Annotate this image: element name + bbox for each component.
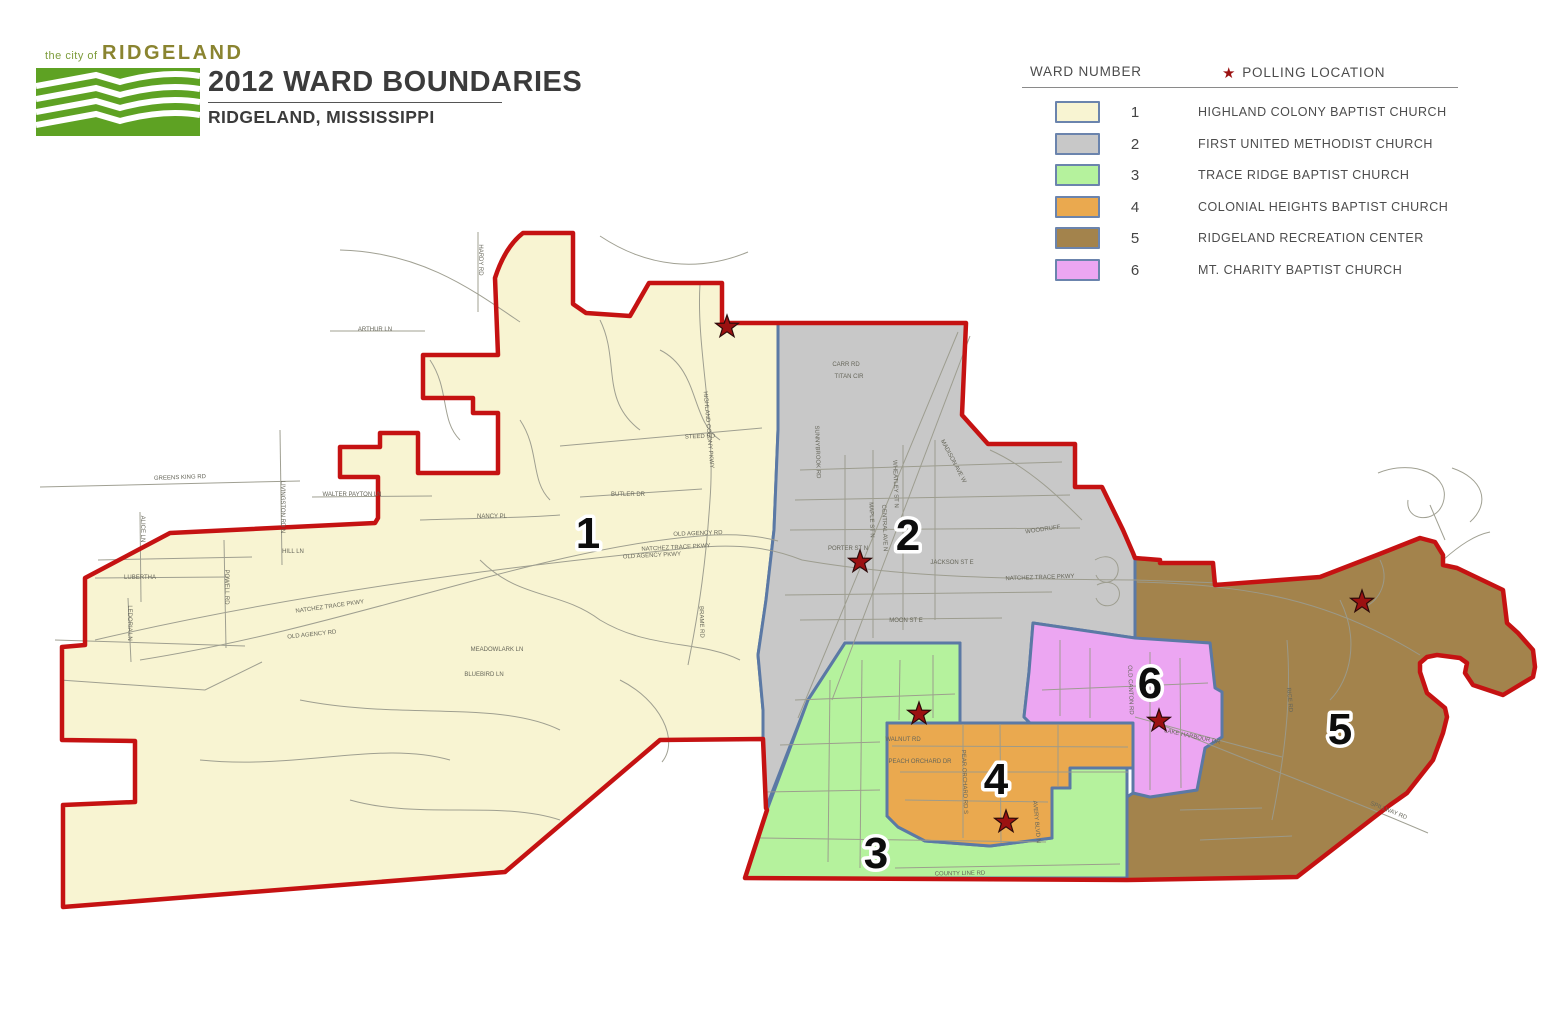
legend-polling-location: FIRST UNITED METHODIST CHURCH	[1198, 137, 1433, 151]
map-poster: ARTHUR LNHARDY RDGREENS KING RDWALTER PA…	[0, 0, 1568, 1014]
street-label: LUBERTHA	[124, 575, 156, 581]
street-label: WALNUT RD	[885, 737, 921, 743]
street-label: MOON ST E	[889, 618, 923, 624]
ward-number-label-4: 4	[984, 755, 1009, 804]
ward-regions	[62, 233, 1535, 907]
page-title: 2012 WARD BOUNDARIES	[208, 66, 688, 99]
street-line	[600, 236, 748, 264]
ward-region-1	[62, 233, 778, 907]
legend-ward-number: 4	[1118, 199, 1152, 216]
title-rule	[208, 102, 502, 103]
street-label: HARDY RD	[477, 244, 483, 276]
legend-row-ward-5: 5RIDGELAND RECREATION CENTER	[1022, 227, 1458, 250]
legend-polling-location: COLONIAL HEIGHTS BAPTIST CHURCH	[1198, 200, 1448, 214]
street-label: GREENS KING RD	[154, 474, 207, 482]
street-label: MAPLE ST N	[867, 502, 874, 538]
street-line	[340, 250, 520, 322]
street-label: COUNTY LINE RD	[935, 871, 986, 878]
logo-text: the city of RIDGELAND	[45, 42, 243, 65]
legend-rows: 1HIGHLAND COLONY BAPTIST CHURCH2FIRST UN…	[1022, 101, 1458, 282]
ward-number-label-2: 2	[896, 511, 920, 560]
street-label: POWELL RD	[223, 569, 229, 605]
legend-swatch-ward-6	[1055, 259, 1100, 281]
street-label: CARR RD	[832, 362, 860, 368]
legend-swatch-ward-4	[1055, 196, 1100, 218]
legend-polling-heading-group: ★POLLING LOCATION	[1222, 64, 1385, 82]
legend-polling-location: MT. CHARITY BAPTIST CHURCH	[1198, 263, 1402, 277]
polling-star-icon: ★	[1222, 65, 1236, 82]
legend-ward-number-heading: WARD NUMBER	[1030, 64, 1142, 79]
legend-polling-location: HIGHLAND COLONY BAPTIST CHURCH	[1198, 105, 1447, 119]
legend-polling-location: RIDGELAND RECREATION CENTER	[1198, 231, 1424, 245]
street-label: BRAME RD	[697, 606, 704, 639]
street-line	[1430, 505, 1445, 540]
ward-number-label-6: 6	[1138, 659, 1162, 708]
street-label: BLUEBIRD LN	[464, 672, 503, 678]
street-label: HILL LN	[282, 549, 304, 555]
ward-number-label-5: 5	[1328, 705, 1352, 754]
legend-header: WARD NUMBER ★POLLING LOCATION	[1022, 58, 1458, 80]
legend-ward-number: 5	[1118, 230, 1152, 247]
legend: WARD NUMBER ★POLLING LOCATION 1HIGHLAND …	[1022, 58, 1458, 291]
header: the city of RIDGELAND 2012 WARD BOUNDARI…	[0, 0, 700, 160]
legend-divider	[1022, 87, 1458, 88]
street-label: BUTLER DR	[611, 492, 646, 498]
logo-waves-icon	[36, 68, 200, 136]
legend-row-ward-6: 6MT. CHARITY BAPTIST CHURCH	[1022, 259, 1458, 282]
legend-ward-number: 3	[1118, 167, 1152, 184]
logo-brand-text: RIDGELAND	[102, 42, 243, 64]
legend-ward-number: 6	[1118, 262, 1152, 279]
street-label: ALICE LN	[139, 516, 145, 543]
legend-polling-location: TRACE RIDGE BAPTIST CHURCH	[1198, 168, 1409, 182]
street-label: NANCY PL	[477, 514, 508, 520]
legend-swatch-ward-1	[1055, 101, 1100, 123]
legend-swatch-ward-2	[1055, 133, 1100, 155]
street-label: ARTHUR LN	[358, 327, 392, 333]
legend-swatch-ward-5	[1055, 227, 1100, 249]
street-label: LIVINGSTON RD N	[279, 481, 285, 534]
legend-row-ward-3: 3TRACE RIDGE BAPTIST CHURCH	[1022, 164, 1458, 187]
street-label: TITAN CIR	[835, 374, 865, 380]
title-block: 2012 WARD BOUNDARIES RIDGELAND, MISSISSI…	[208, 66, 688, 128]
legend-ward-number: 1	[1118, 104, 1152, 121]
street-label: WALTER PAYTON LN	[322, 492, 381, 498]
street-label: LEDORIA LN	[126, 605, 132, 640]
legend-row-ward-1: 1HIGHLAND COLONY BAPTIST CHURCH	[1022, 101, 1458, 124]
legend-swatch-ward-3	[1055, 164, 1100, 186]
ward-number-label-3: 3	[864, 829, 888, 878]
street-line	[40, 481, 300, 487]
logo-small-text: the city of	[45, 50, 98, 62]
street-line	[1452, 468, 1482, 522]
legend-ward-number: 2	[1118, 136, 1152, 153]
street-label: PORTER ST N	[828, 546, 868, 552]
legend-polling-heading: POLLING LOCATION	[1242, 65, 1385, 80]
legend-row-ward-2: 2FIRST UNITED METHODIST CHURCH	[1022, 133, 1458, 156]
street-label: JACKSON ST E	[930, 560, 973, 566]
page-subtitle: RIDGELAND, MISSISSIPPI	[208, 107, 688, 128]
street-line	[1443, 532, 1490, 560]
street-line	[1378, 468, 1444, 518]
ward-number-label-1: 1	[576, 509, 600, 558]
street-label: MEADOWLARK LN	[471, 647, 524, 653]
street-label: PEACH ORCHARD DR	[888, 759, 952, 765]
legend-row-ward-4: 4COLONIAL HEIGHTS BAPTIST CHURCH	[1022, 196, 1458, 219]
